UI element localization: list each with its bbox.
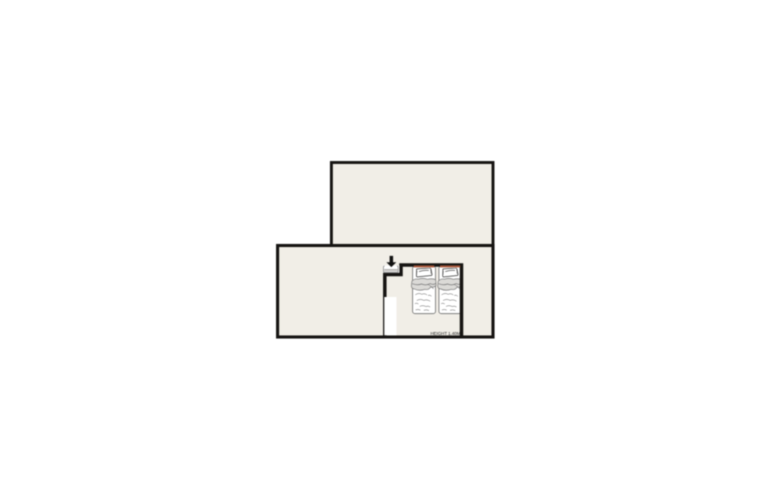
svg-text:HEIGHT 1.40M: HEIGHT 1.40M: [430, 331, 460, 336]
